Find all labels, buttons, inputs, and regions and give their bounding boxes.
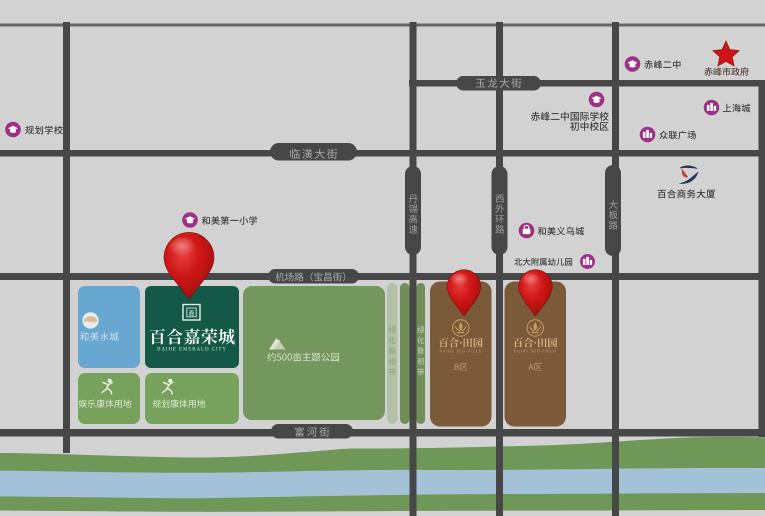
- svg-text:BAIHE MID-FIELD: BAIHE MID-FIELD: [514, 349, 557, 354]
- svg-text:BAIHE MID-FIELD: BAIHE MID-FIELD: [439, 349, 482, 354]
- svg-text:BAIHE EMERALD CITY: BAIHE EMERALD CITY: [157, 348, 227, 353]
